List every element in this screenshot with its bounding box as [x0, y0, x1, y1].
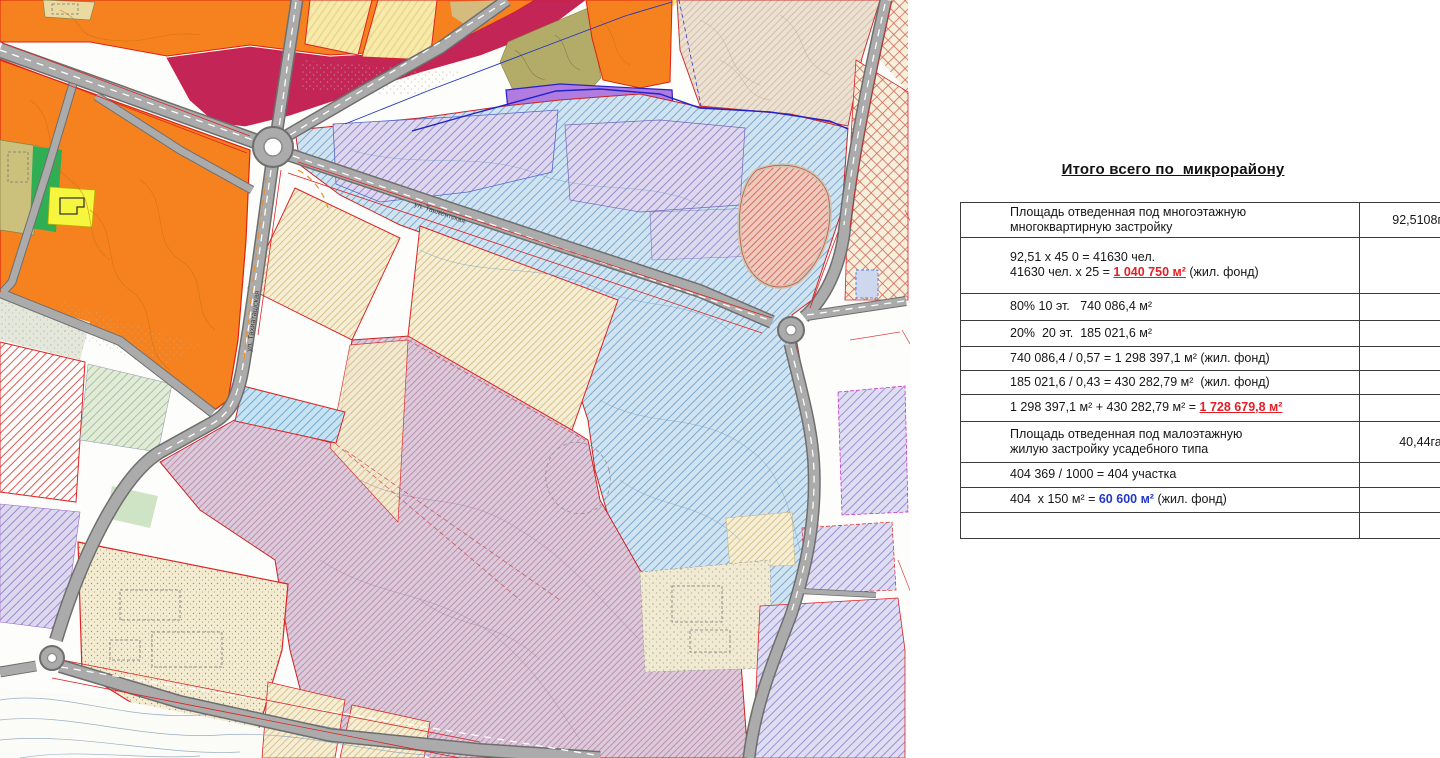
table-cell-description: 80% 10 эт. 740 086,4 м²	[961, 293, 1360, 320]
table-cell-description: 404 x 150 м² = 60 600 м² (жил. фонд)	[961, 487, 1360, 512]
lavender-east-1	[838, 386, 908, 515]
table-row: 740 086,4 / 0,57 = 1 298 397,1 м² (жил. …	[961, 346, 1440, 370]
blue-outline-parcel	[856, 270, 878, 298]
table-cell-value	[1360, 370, 1440, 394]
table-row: Площадь отведенная под многоэтажную мног…	[961, 203, 1440, 238]
totals-table-body: Площадь отведенная под многоэтажную мног…	[961, 203, 1440, 539]
yellow-parcel-left	[48, 187, 95, 227]
table-cell-value	[1360, 487, 1440, 512]
table-row: 404 x 150 м² = 60 600 м² (жил. фонд)	[961, 487, 1440, 512]
table-cell-description: 404 369 / 1000 = 404 участка	[961, 462, 1360, 487]
table-cell-value: 92,5108га	[1360, 203, 1440, 238]
table-row: 404 369 / 1000 = 404 участка	[961, 462, 1440, 487]
summary-title: Итого всего по микрорайону	[968, 161, 1378, 178]
beige-patch	[726, 512, 795, 568]
table-row: 1 298 397,1 м² + 430 282,79 м² = 1 728 6…	[961, 394, 1440, 421]
table-row: 20% 20 эт. 185 021,6 м²	[961, 320, 1440, 346]
table-cell-description: Площадь отведенная под многоэтажную мног…	[961, 203, 1360, 238]
table-cell-value	[1360, 512, 1440, 538]
table-row: 185 021,6 / 0,43 = 430 282,79 м² (жил. ф…	[961, 370, 1440, 394]
table-cell-description: 92,51 x 45 0 = 41630 чел. 41630 чел. x 2…	[961, 237, 1360, 293]
table-cell-value	[1360, 346, 1440, 370]
table-cell-description: 185 021,6 / 0,43 = 430 282,79 м² (жил. ф…	[961, 370, 1360, 394]
zones	[0, 0, 908, 758]
yellow-parcel-topleft	[43, 0, 95, 20]
table-cell-description: Площадь отведенная под малоэтажную жилую…	[961, 421, 1360, 462]
table-cell-description: 20% 20 эт. 185 021,6 м²	[961, 320, 1360, 346]
table-row: 92,51 x 45 0 = 41630 чел. 41630 чел. x 2…	[961, 237, 1440, 293]
zoning-map-image: ул. Ташкентская ул. Тахиаташская	[0, 0, 910, 758]
table-cell-value	[1360, 462, 1440, 487]
table-cell-value	[1360, 320, 1440, 346]
table-row: 80% 10 эт. 740 086,4 м²	[961, 293, 1440, 320]
zoning-map-svg: ул. Ташкентская ул. Тахиаташская	[0, 0, 910, 758]
lavender-parcel-2	[565, 120, 745, 212]
table-cell-value: 40,44га	[1360, 421, 1440, 462]
table-row	[961, 512, 1440, 538]
table-cell-value	[1360, 237, 1440, 293]
table-cell-description: 740 086,4 / 0,57 = 1 298 397,1 м² (жил. …	[961, 346, 1360, 370]
page: ул. Ташкентская ул. Тахиаташская Итого в…	[0, 0, 1440, 758]
table-cell-value	[1360, 293, 1440, 320]
totals-table: Площадь отведенная под многоэтажную мног…	[960, 202, 1440, 539]
table-cell-description: 1 298 397,1 м² + 430 282,79 м² = 1 728 6…	[961, 394, 1360, 421]
table-row: Площадь отведенная под малоэтажную жилую…	[961, 421, 1440, 462]
table-cell-value	[1360, 394, 1440, 421]
red-hatch-parcel	[0, 342, 85, 502]
table-cell-description	[961, 512, 1360, 538]
